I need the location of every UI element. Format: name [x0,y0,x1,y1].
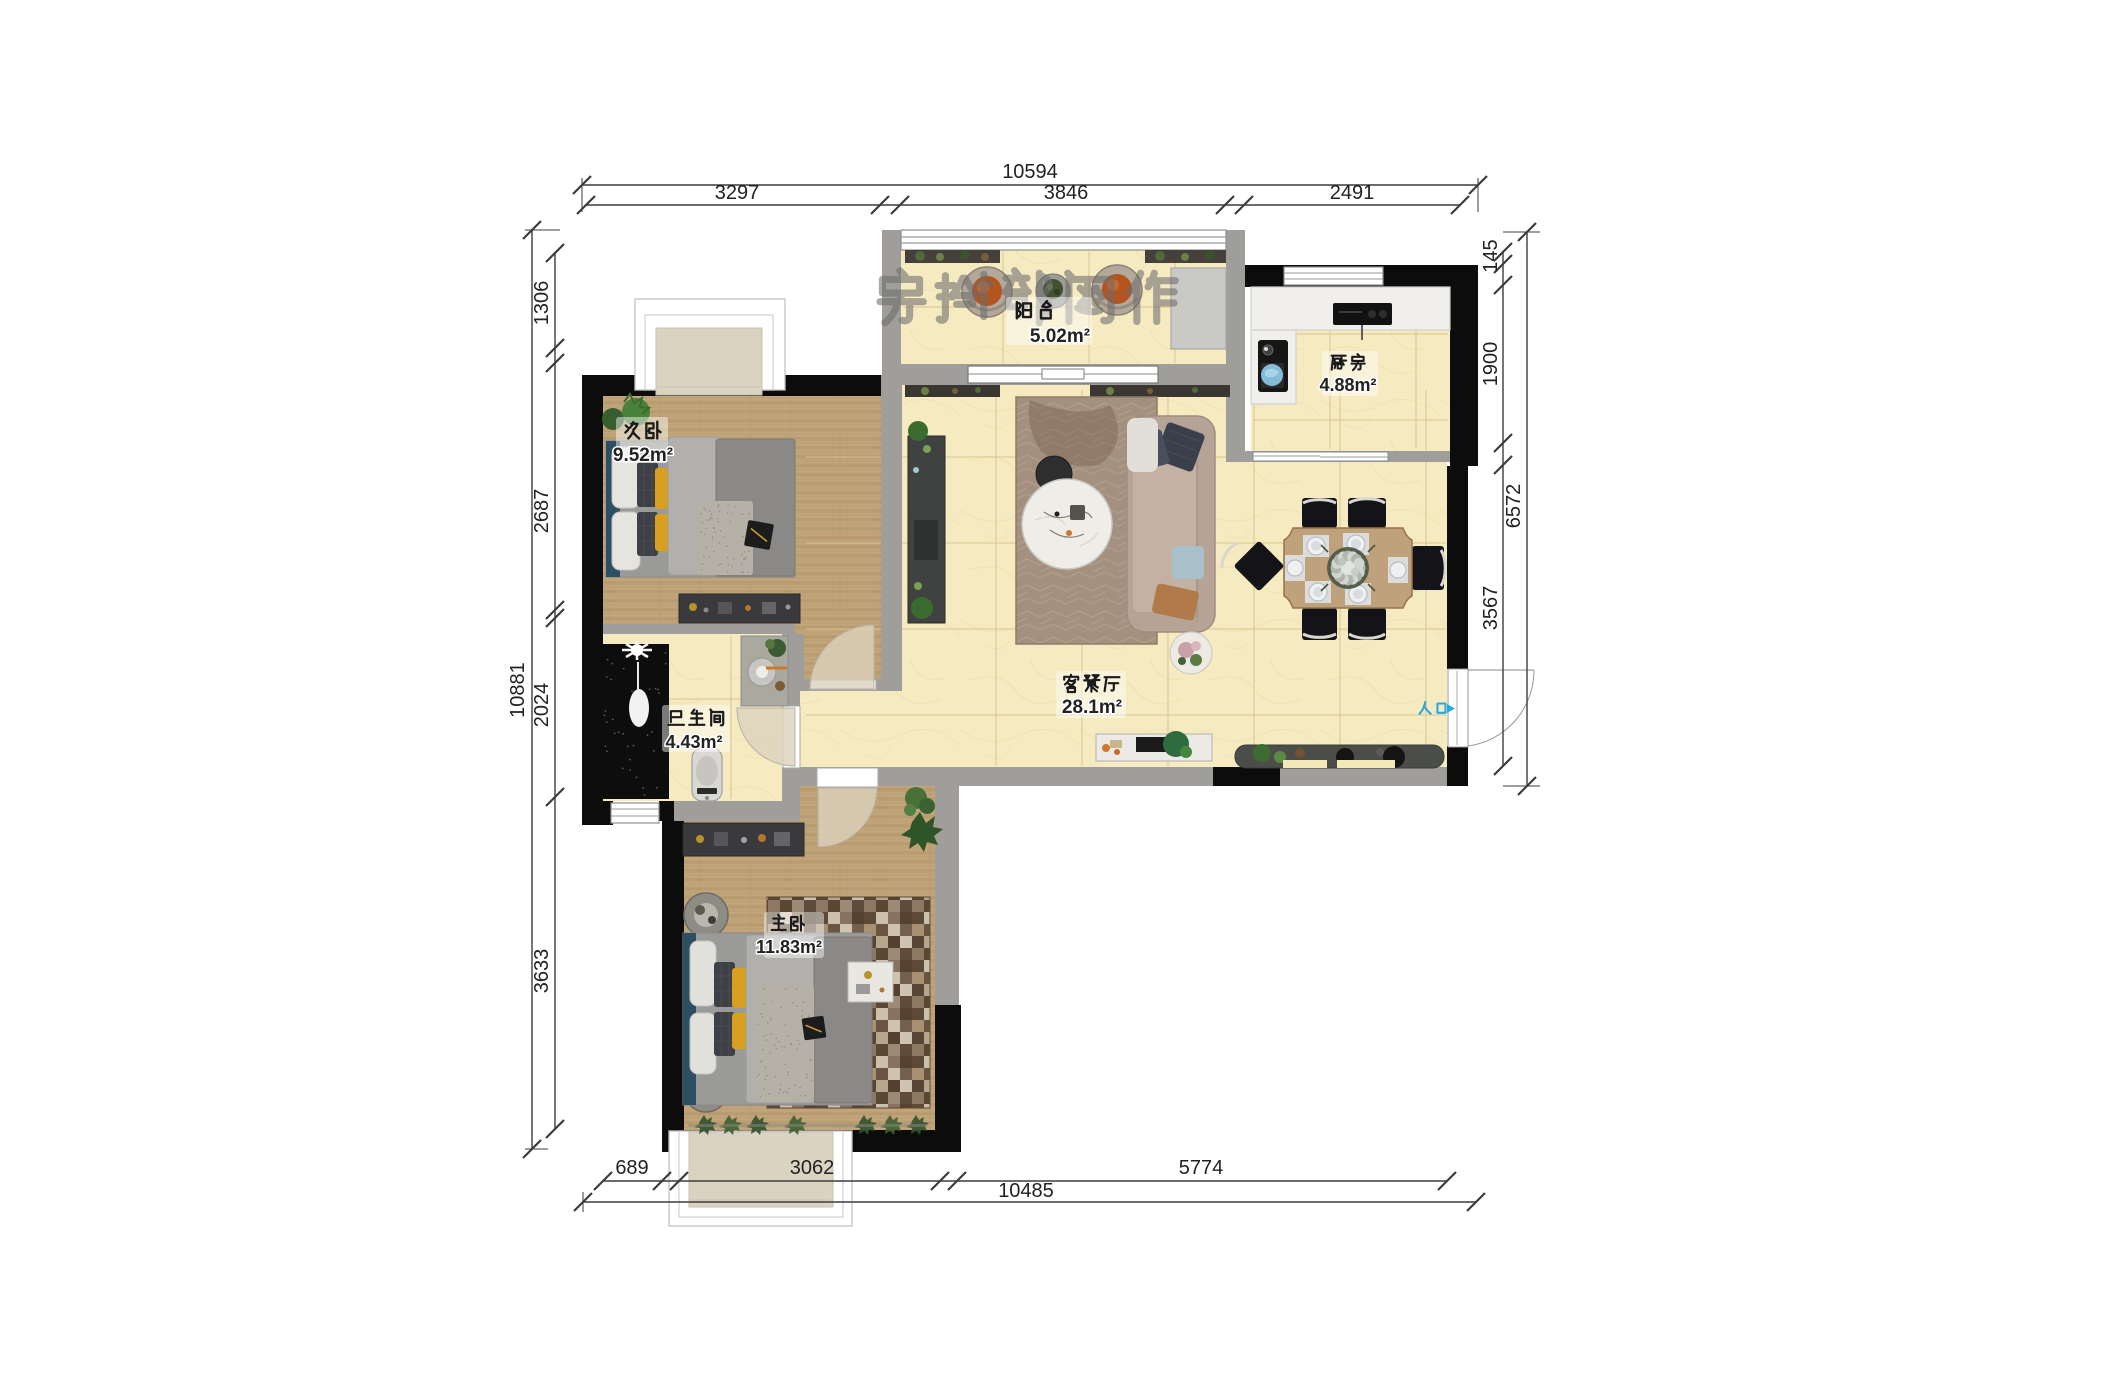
svg-text:6572: 6572 [1503,484,1525,529]
svg-text:2024: 2024 [531,683,553,728]
svg-text:9.52m²: 9.52m² [613,445,673,466]
svg-text:1900: 1900 [1480,342,1502,387]
svg-text:5.02m²: 5.02m² [1030,326,1090,347]
svg-text:10485: 10485 [998,1180,1054,1202]
svg-text:3297: 3297 [715,182,760,204]
svg-text:3062: 3062 [790,1157,835,1179]
svg-text:145: 145 [1480,239,1502,272]
svg-text:28.1m²: 28.1m² [1062,697,1122,718]
svg-text:5774: 5774 [1179,1157,1224,1179]
svg-text:10881: 10881 [507,662,529,718]
svg-text:11.83m²: 11.83m² [756,937,822,957]
svg-text:2687: 2687 [531,489,553,534]
svg-text:4.88m²: 4.88m² [1319,375,1376,395]
svg-text:1306: 1306 [531,281,553,326]
svg-text:3567: 3567 [1480,586,1502,631]
svg-text:689: 689 [615,1157,648,1179]
svg-text:3846: 3846 [1044,182,1089,204]
svg-text:2491: 2491 [1330,182,1375,204]
svg-text:3633: 3633 [531,949,553,994]
svg-text:10594: 10594 [1002,161,1058,183]
svg-text:4.43m²: 4.43m² [665,732,722,752]
